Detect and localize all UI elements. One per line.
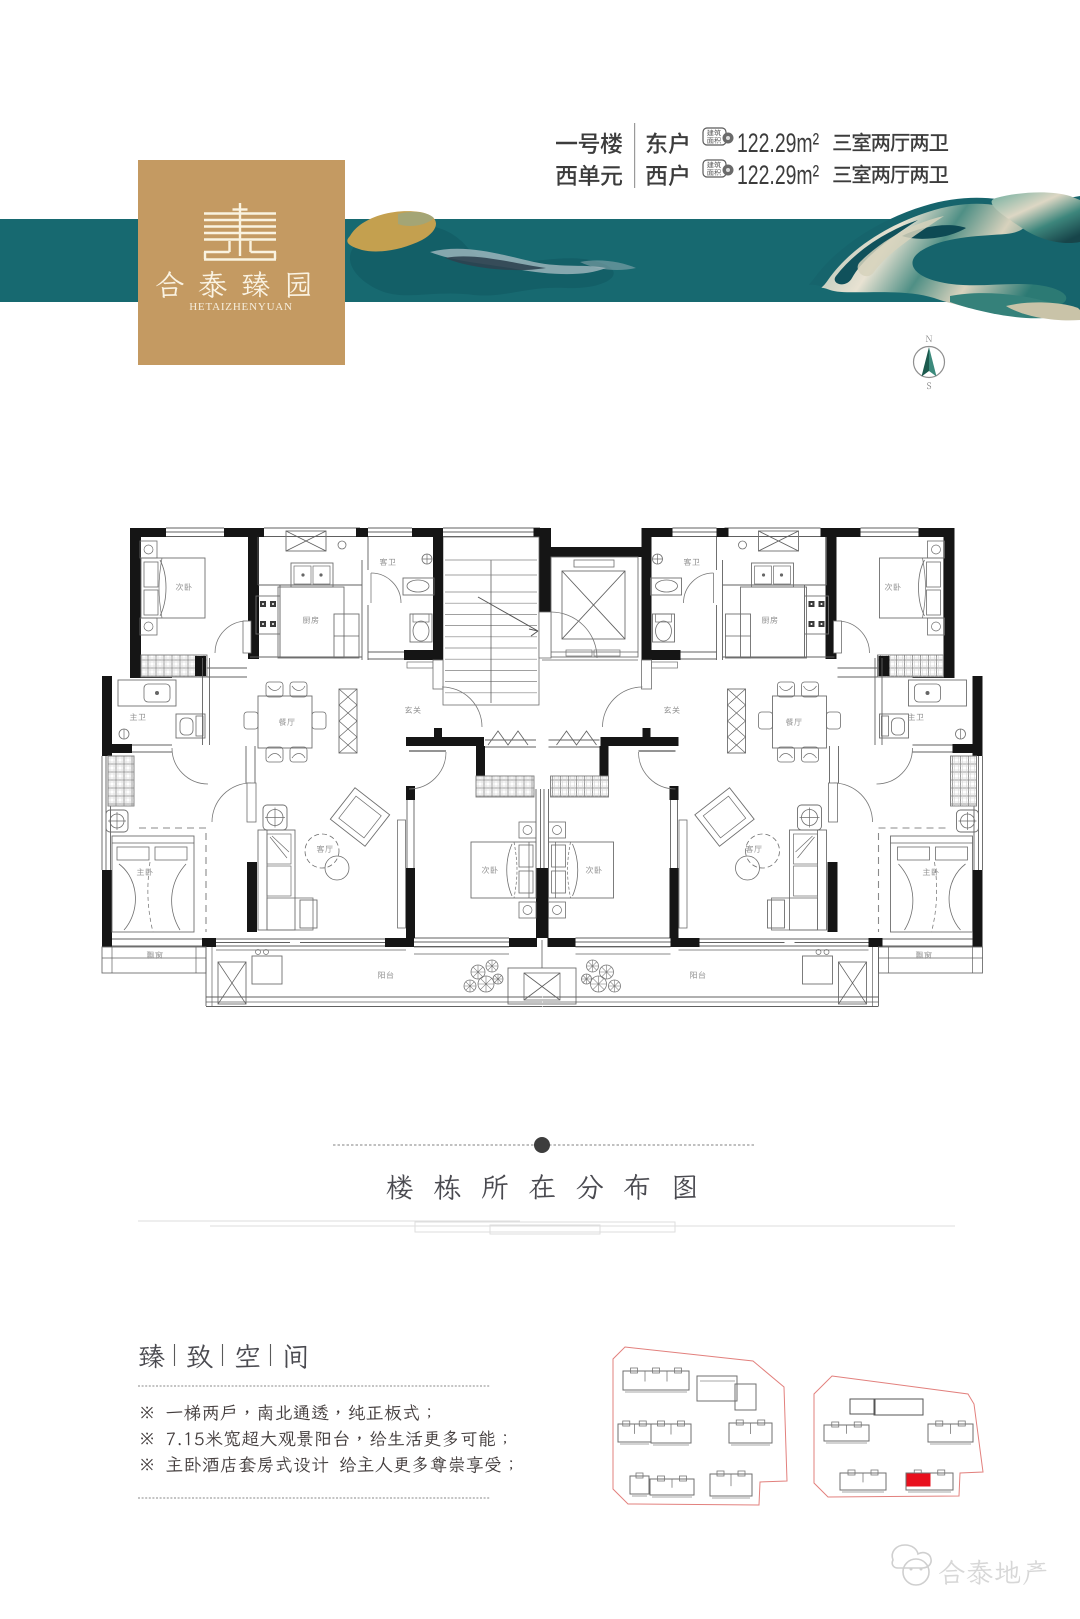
svg-text:122.29m²: 122.29m² <box>737 160 819 190</box>
svg-text:HETAIZHENYUAN: HETAIZHENYUAN <box>189 301 293 313</box>
svg-text:122.29m²: 122.29m² <box>737 128 819 158</box>
